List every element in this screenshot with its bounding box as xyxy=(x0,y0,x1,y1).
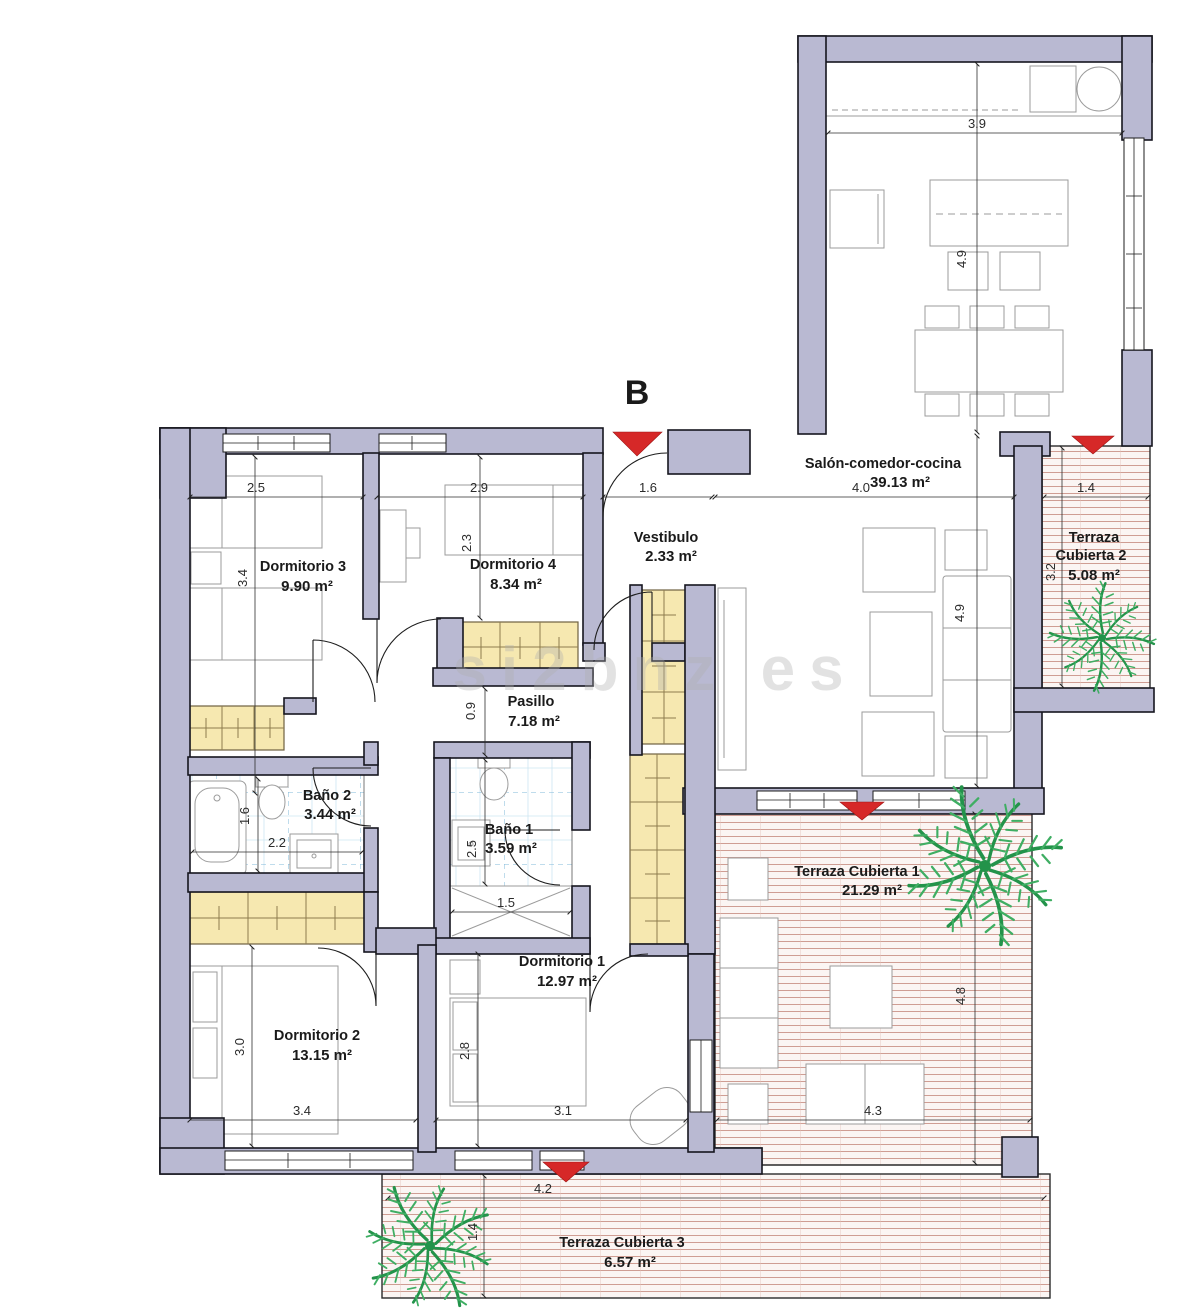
area-terraza3: 6.57 m² xyxy=(604,1254,656,1271)
floorplan-drawing: B Salón-comedor-cocina 39.13 m² Vestibul… xyxy=(0,0,1180,1314)
area-terraza1: 21.29 m² xyxy=(842,882,902,899)
area-dormitorio1: 12.97 m² xyxy=(537,973,597,990)
floorplan-page: B Salón-comedor-cocina 39.13 m² Vestibul… xyxy=(0,0,1180,1314)
area-terraza2: 5.08 m² xyxy=(1068,567,1120,584)
area-bano1: 3.59 m² xyxy=(485,840,537,857)
dim-d4-width: 2.9 xyxy=(470,480,488,495)
dim-terraza2-depth: 3.2 xyxy=(1043,563,1058,581)
area-dormitorio2: 13.15 m² xyxy=(292,1047,352,1064)
dim-d3-width: 2.5 xyxy=(247,480,265,495)
label-dormitorio3: Dormitorio 3 xyxy=(260,559,346,575)
entrance-arrow-main xyxy=(613,432,662,456)
label-terraza3: Terraza Cubierta 3 xyxy=(559,1235,684,1251)
dim-d2-width: 3.4 xyxy=(293,1103,311,1118)
dim-salon-width: 4.0 xyxy=(852,480,870,495)
dim-bano2-depth: 1.6 xyxy=(237,807,252,825)
dim-terraza2-width: 1.4 xyxy=(1077,480,1095,495)
dim-terraza3-depth: 1.4 xyxy=(465,1223,480,1241)
dim-d2-depth: 3.0 xyxy=(232,1038,247,1056)
wardrobe-dorm1 xyxy=(630,754,685,944)
window-salon-terraza1-left xyxy=(757,791,857,810)
area-salon: 39.13 m² xyxy=(870,474,930,491)
label-vestibulo: Vestibulo xyxy=(634,530,699,546)
dim-terraza3-width: 4.2 xyxy=(534,1181,552,1196)
dim-salon-depth: 4.9 xyxy=(952,604,967,622)
dim-terraza1-width: 4.3 xyxy=(864,1103,882,1118)
terraza-3-floor xyxy=(382,1174,1050,1298)
label-bano2: Baño 2 xyxy=(303,788,351,804)
window-dorm3 xyxy=(223,434,330,452)
dim-bano1-depth: 2.5 xyxy=(464,840,479,858)
dim-pasillo-width: 0.9 xyxy=(463,702,478,720)
window-salon-terraza1-right xyxy=(873,791,965,810)
label-salon: Salón-comedor-cocina xyxy=(805,456,962,472)
area-dormitorio4: 8.34 m² xyxy=(490,576,542,593)
dim-kitchen-depth: 4.9 xyxy=(954,250,969,268)
window-dorm1-left xyxy=(455,1151,532,1170)
wardrobe-dorm2 xyxy=(190,892,366,944)
dim-bano2-width: 2.2 xyxy=(268,835,286,850)
entrance-door xyxy=(603,453,667,517)
window-dorm1-terraza xyxy=(690,1040,712,1112)
area-pasillo: 7.18 m² xyxy=(508,713,560,730)
dim-bano1-width: 1.5 xyxy=(497,895,515,910)
label-terraza2-line1: Terraza xyxy=(1069,530,1120,546)
area-dormitorio3: 9.90 m² xyxy=(281,578,333,595)
dim-vestibulo-width: 1.6 xyxy=(639,480,657,495)
wardrobe-dorm3 xyxy=(190,706,284,750)
window-dorm2 xyxy=(225,1151,413,1170)
window-dorm4 xyxy=(379,434,446,452)
dim-d1-depth: 2.8 xyxy=(457,1042,472,1060)
label-terraza2-line2: Cubierta 2 xyxy=(1056,548,1127,564)
area-vestibulo: 2.33 m² xyxy=(645,548,697,565)
label-bano1: Baño 1 xyxy=(485,822,533,838)
dorm4-door xyxy=(377,619,441,683)
dim-d4-depth: 2.3 xyxy=(459,534,474,552)
dim-d3-depth: 3.4 xyxy=(235,569,250,587)
window-salon-right xyxy=(1124,138,1144,350)
label-dormitorio4: Dormitorio 4 xyxy=(470,557,556,573)
area-bano2: 3.44 m² xyxy=(304,806,356,823)
label-terraza1: Terraza Cubierta 1 xyxy=(794,864,919,880)
block-letter: B xyxy=(625,374,650,412)
label-dormitorio2: Dormitorio 2 xyxy=(274,1028,360,1044)
label-dormitorio1: Dormitorio 1 xyxy=(519,954,605,970)
dim-kitchen-width: 3.9 xyxy=(968,116,986,131)
dim-d1-width: 3.1 xyxy=(554,1103,572,1118)
dim-terraza1-depth: 4.8 xyxy=(953,987,968,1005)
watermark: si2bnz es xyxy=(452,635,857,704)
